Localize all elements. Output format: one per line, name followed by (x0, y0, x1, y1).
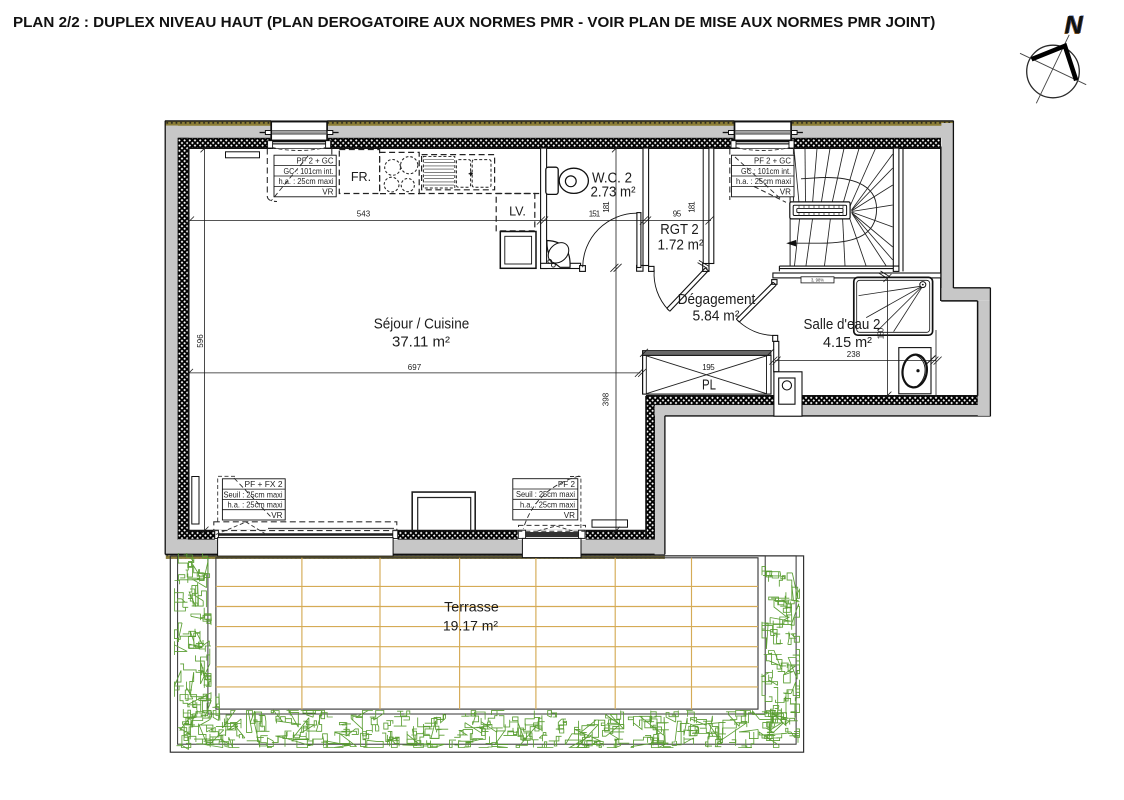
svg-text:596: 596 (196, 334, 205, 348)
svg-text:Seuil : 25cm maxi: Seuil : 25cm maxi (516, 490, 575, 499)
svg-text:FR.: FR. (351, 170, 371, 184)
svg-text:398: 398 (602, 392, 611, 406)
svg-text:GC : 101cm int.: GC : 101cm int. (284, 167, 334, 176)
svg-text:1.72 m²: 1.72 m² (658, 238, 704, 254)
svg-text:N: N (1065, 12, 1084, 40)
svg-text:VR: VR (322, 188, 333, 197)
svg-text:Dégagement: Dégagement (678, 292, 756, 308)
svg-text:697: 697 (408, 363, 422, 372)
svg-text:RGT 2: RGT 2 (660, 222, 699, 238)
svg-text:PF 2 + GC: PF 2 + GC (297, 156, 334, 165)
svg-text:Séjour / Cuisine: Séjour / Cuisine (374, 317, 470, 333)
svg-text:LV.: LV. (509, 205, 526, 219)
svg-text:PF 2 + GC: PF 2 + GC (754, 156, 791, 165)
svg-text:5.84 m²: 5.84 m² (693, 309, 740, 325)
svg-text:543: 543 (357, 210, 371, 219)
svg-text:VR: VR (780, 188, 791, 197)
svg-text:PF + FX 2: PF + FX 2 (245, 480, 284, 489)
svg-text:h.a. : 25cm maxi: h.a. : 25cm maxi (228, 501, 283, 510)
svg-text:95: 95 (673, 210, 682, 219)
svg-text:3, 98%: 3, 98% (811, 278, 824, 283)
svg-text:238: 238 (847, 350, 861, 359)
svg-text:PL: PL (702, 378, 716, 394)
svg-text:VR: VR (564, 511, 575, 520)
svg-text:VR: VR (271, 511, 282, 520)
svg-text:195: 195 (702, 363, 715, 372)
svg-text:181: 181 (602, 201, 611, 213)
svg-text:151: 151 (589, 210, 601, 219)
svg-text:19.17 m²: 19.17 m² (443, 619, 499, 634)
svg-text:h.a. : 25cm maxi: h.a. : 25cm maxi (736, 177, 791, 186)
svg-text:37.11 m²: 37.11 m² (392, 335, 450, 351)
svg-text:2.73 m²: 2.73 m² (591, 185, 636, 201)
svg-text:h.a. : 25cm maxi: h.a. : 25cm maxi (520, 501, 575, 510)
svg-text:4.15 m²: 4.15 m² (823, 335, 872, 351)
svg-text:PF 2: PF 2 (558, 480, 576, 489)
svg-text:181: 181 (688, 201, 697, 213)
svg-text:GC : 101cm int.: GC : 101cm int. (741, 167, 791, 176)
svg-text:Terrasse: Terrasse (444, 600, 499, 615)
svg-text:Salle d'eau 2: Salle d'eau 2 (804, 317, 881, 333)
svg-text:PLAN 2/2 : DUPLEX NIVEAU HAUT: PLAN 2/2 : DUPLEX NIVEAU HAUT (PLAN DERO… (13, 14, 935, 31)
